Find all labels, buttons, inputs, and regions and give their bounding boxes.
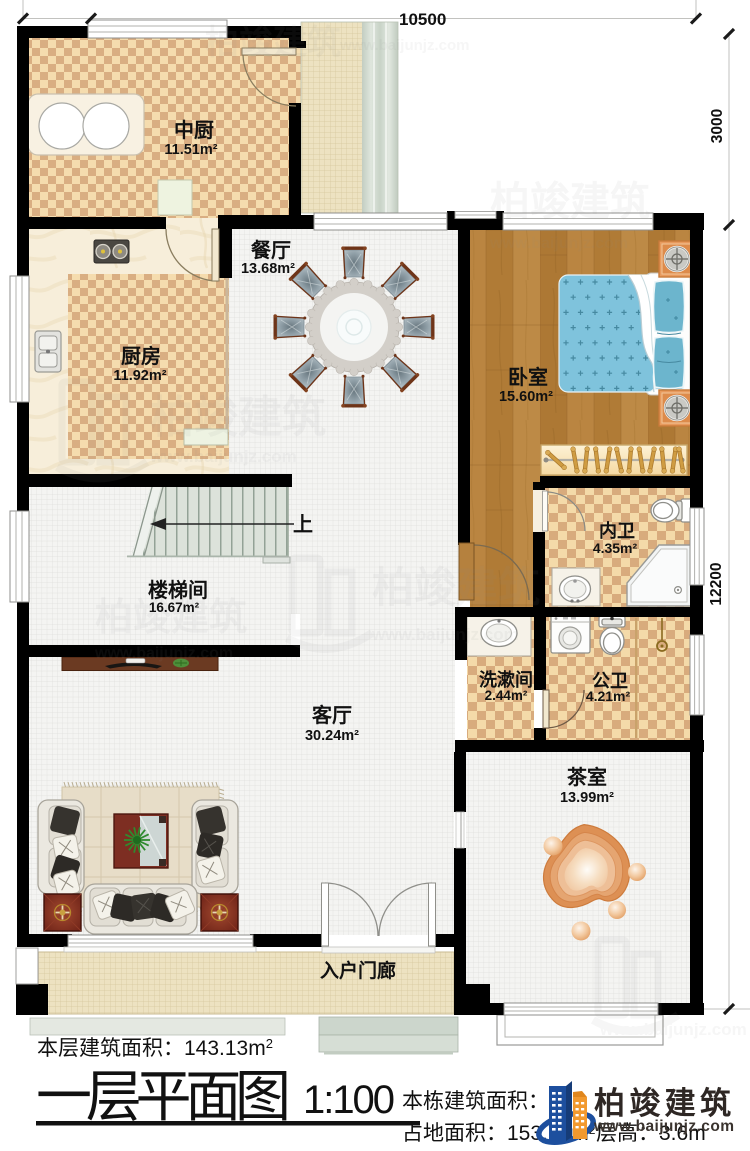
svg-text:厨房: 厨房 bbox=[121, 344, 161, 368]
svg-text:卧室: 卧室 bbox=[508, 365, 548, 389]
svg-text:www.baijunjz.com: www.baijunjz.com bbox=[94, 645, 233, 662]
svg-text:16.67m²: 16.67m² bbox=[149, 600, 200, 615]
svg-text:本栋建筑面积：: 本栋建筑面积： bbox=[402, 1090, 549, 1113]
svg-text:上: 上 bbox=[293, 513, 313, 536]
svg-text:4.21m²: 4.21m² bbox=[586, 688, 631, 704]
svg-text:www.baijunjz.com: www.baijunjz.com bbox=[339, 37, 469, 54]
svg-text:餐厅: 餐厅 bbox=[251, 238, 291, 262]
svg-text:茶室: 茶室 bbox=[567, 765, 607, 789]
svg-text:1:100: 1:100 bbox=[303, 1078, 395, 1122]
svg-text:一层平面图: 一层平面图 bbox=[36, 1065, 291, 1128]
svg-text:入户门廊: 入户门廊 bbox=[320, 959, 396, 982]
svg-text:www.baijunjz.com: www.baijunjz.com bbox=[593, 1118, 734, 1135]
svg-text:11.92m²: 11.92m² bbox=[113, 368, 166, 384]
svg-text:www.baijunjz.com: www.baijunjz.com bbox=[371, 625, 519, 644]
svg-text:4.35m²: 4.35m² bbox=[593, 540, 638, 556]
svg-text:www.baijunjz.com: www.baijunjz.com bbox=[599, 1020, 747, 1039]
svg-text:13.99m²: 13.99m² bbox=[560, 790, 614, 806]
svg-text:柏竣建筑: 柏竣建筑 bbox=[205, 23, 341, 62]
svg-text:中厨: 中厨 bbox=[174, 118, 214, 142]
svg-text:13.68m²: 13.68m² bbox=[241, 261, 295, 277]
svg-text:客厅: 客厅 bbox=[311, 703, 352, 727]
svg-text:www.baijunjz.com: www.baijunjz.com bbox=[149, 447, 297, 466]
svg-text:www.baijunjz.com: www.baijunjz.com bbox=[489, 235, 628, 252]
svg-text:11.51m²: 11.51m² bbox=[164, 142, 217, 158]
svg-text:柏竣建筑: 柏竣建筑 bbox=[490, 180, 650, 224]
svg-text:本层建筑面积：143.13m2: 本层建筑面积：143.13m2 bbox=[37, 1036, 273, 1060]
svg-text:3000: 3000 bbox=[709, 109, 726, 143]
svg-text:柏竣建筑: 柏竣建筑 bbox=[372, 564, 540, 611]
svg-text:12200: 12200 bbox=[708, 562, 725, 605]
svg-text:2.44m²: 2.44m² bbox=[485, 688, 528, 703]
svg-text:柏竣建筑: 柏竣建筑 bbox=[150, 393, 326, 442]
svg-text:内卫: 内卫 bbox=[599, 520, 635, 541]
svg-text:10500: 10500 bbox=[399, 10, 446, 29]
svg-text:30.24m²: 30.24m² bbox=[305, 728, 359, 744]
svg-text:楼梯间: 楼梯间 bbox=[148, 578, 208, 602]
svg-text:洗漱间: 洗漱间 bbox=[479, 669, 533, 690]
svg-text:15.60m²: 15.60m² bbox=[499, 389, 553, 405]
